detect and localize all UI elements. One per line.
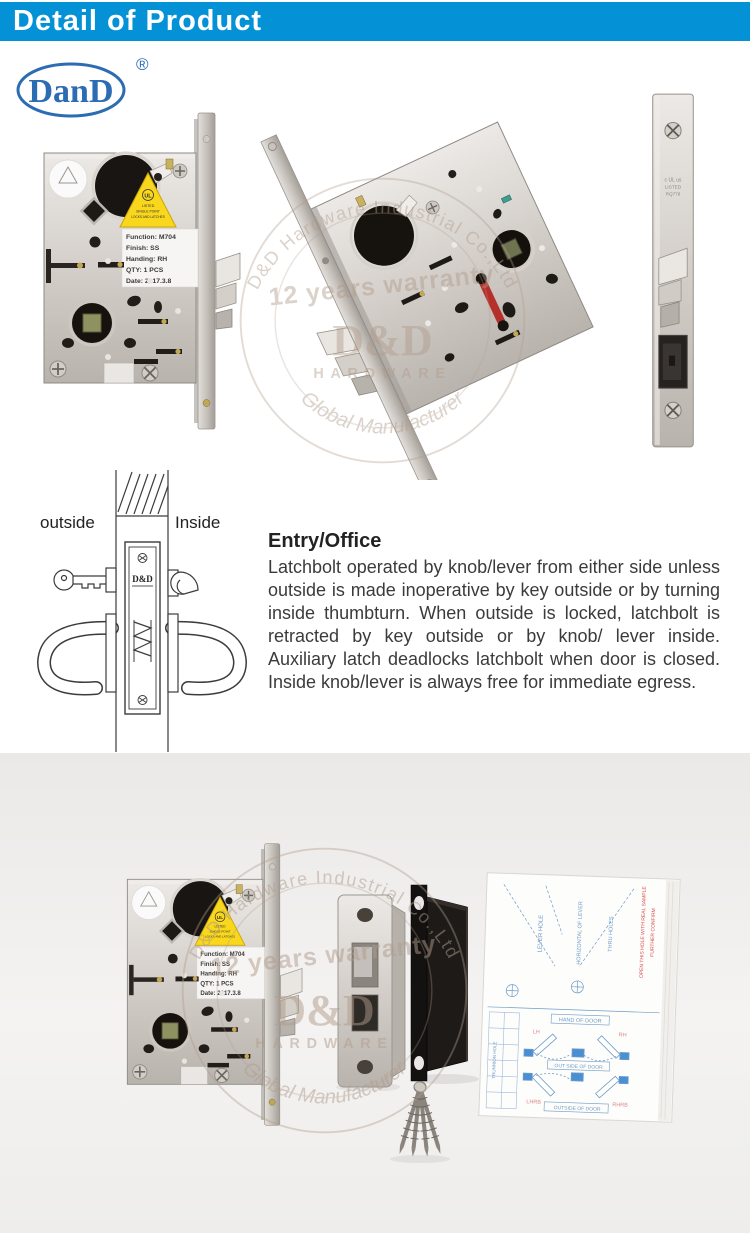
sheet-lh: LH (533, 1029, 540, 1035)
sheet-rhrb: RHRB (612, 1102, 628, 1109)
description-body: Latchbolt operated by knob/lever from ei… (268, 556, 720, 694)
install-diagram: outside Inside D&D (28, 462, 253, 757)
sheet-thru-holes: THRU HOLES (608, 916, 615, 952)
logo-text: DanD (28, 73, 113, 110)
diagram-thumbturn (168, 570, 198, 596)
kit-photo-section: LEVER HOLE HORIZONTAL OF LEVER THRU HOLE… (0, 753, 750, 1233)
diagram-outside-label: outside (40, 513, 95, 532)
diagram-key (54, 568, 116, 592)
diagram-inside-lever (168, 614, 240, 692)
watermark-bottom (152, 818, 497, 1163)
diagram-inside-label: Inside (175, 513, 220, 532)
description-block: Entry/Office Latchbolt operated by knob/… (268, 530, 720, 694)
sheet-rh: RH (619, 1032, 627, 1038)
kit-instruction-sheet: LEVER HOLE HORIZONTAL OF LEVER THRU HOLE… (478, 872, 681, 1124)
description-heading: Entry/Office (268, 530, 720, 553)
product-detail-page: UL LISTED SINGLE POINT LOCKS AND LATCHES… (0, 0, 750, 1233)
diagram-outside-lever (44, 614, 116, 692)
watermark-top (210, 148, 555, 493)
registered-mark-icon: ® (136, 55, 149, 74)
diagram-plate-brand: D&D (132, 574, 153, 584)
door-hatch (116, 472, 168, 516)
photo-faceplate (618, 88, 728, 453)
header-banner: Detail of Product (0, 2, 750, 41)
sheet-lhrb: LHRB (526, 1099, 541, 1106)
page-title: Detail of Product (13, 5, 262, 38)
diagram-lock-case (125, 542, 160, 714)
